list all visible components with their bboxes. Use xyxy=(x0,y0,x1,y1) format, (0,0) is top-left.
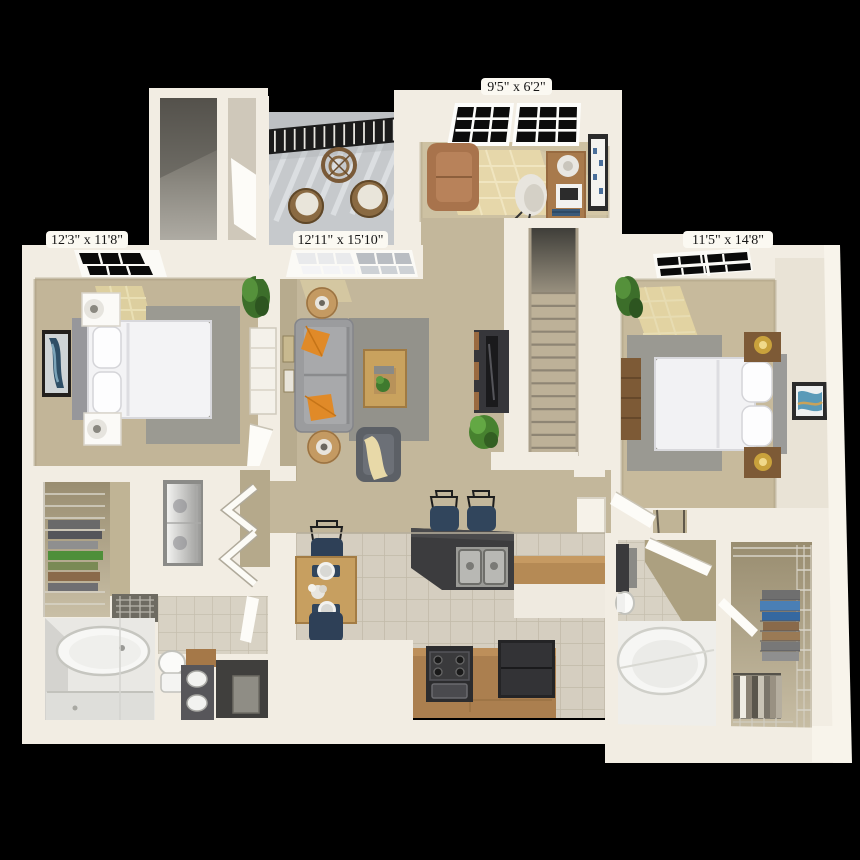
svg-text:12'3" x 11'8": 12'3" x 11'8" xyxy=(51,233,123,248)
svg-text:12'11" x 15'10": 12'11" x 15'10" xyxy=(298,233,384,248)
svg-text:11'5" x 14'8": 11'5" x 14'8" xyxy=(692,233,764,248)
svg-text:9'5" x 6'2": 9'5" x 6'2" xyxy=(487,80,545,95)
